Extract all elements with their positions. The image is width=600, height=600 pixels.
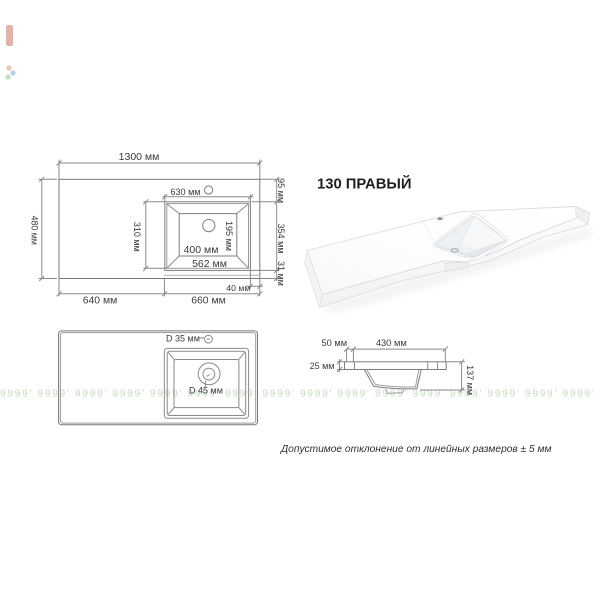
svg-text:50 мм: 50 мм	[321, 338, 347, 348]
svg-text:137 мм: 137 мм	[465, 365, 475, 395]
svg-text:130 ПРАВЫЙ: 130 ПРАВЫЙ	[317, 175, 412, 193]
svg-text:562 мм: 562 мм	[192, 258, 227, 270]
svg-text:40 мм: 40 мм	[226, 283, 250, 293]
svg-text:9999': 9999'	[75, 389, 108, 400]
svg-text:430 мм: 430 мм	[376, 338, 407, 348]
svg-text:25 мм: 25 мм	[310, 361, 335, 371]
svg-text:660 мм: 660 мм	[191, 296, 226, 307]
svg-text:D 45 мм: D 45 мм	[189, 386, 223, 396]
svg-text:9999': 9999'	[563, 389, 596, 400]
svg-text:9999': 9999'	[150, 389, 183, 400]
svg-text:9999': 9999'	[225, 389, 258, 400]
svg-text:1300 мм: 1300 мм	[119, 151, 160, 163]
svg-text:D 35 мм: D 35 мм	[166, 334, 200, 344]
svg-text:9999': 9999'	[38, 389, 71, 400]
svg-text:9999': 9999'	[488, 389, 521, 400]
svg-text:195 мм: 195 мм	[224, 221, 234, 251]
svg-text:9999': 9999'	[300, 389, 333, 400]
svg-text:640 мм: 640 мм	[83, 296, 118, 307]
svg-text:9999': 9999'	[263, 389, 296, 400]
svg-text:310 мм: 310 мм	[132, 222, 142, 252]
svg-text:95 мм: 95 мм	[276, 178, 286, 203]
svg-text:9999': 9999'	[0, 389, 33, 400]
svg-text:9999': 9999'	[113, 389, 146, 400]
svg-text:31 мм: 31 мм	[276, 261, 286, 286]
svg-text:Допустимое отклонение от линей: Допустимое отклонение от линейных размер…	[280, 444, 551, 455]
svg-text:354 мм: 354 мм	[276, 224, 286, 254]
svg-text:630 мм: 630 мм	[171, 187, 201, 197]
svg-text:9999': 9999'	[525, 389, 558, 400]
svg-text:480 мм: 480 мм	[29, 216, 39, 245]
svg-text:9999': 9999'	[338, 389, 371, 400]
svg-text:400 мм: 400 мм	[184, 244, 219, 256]
